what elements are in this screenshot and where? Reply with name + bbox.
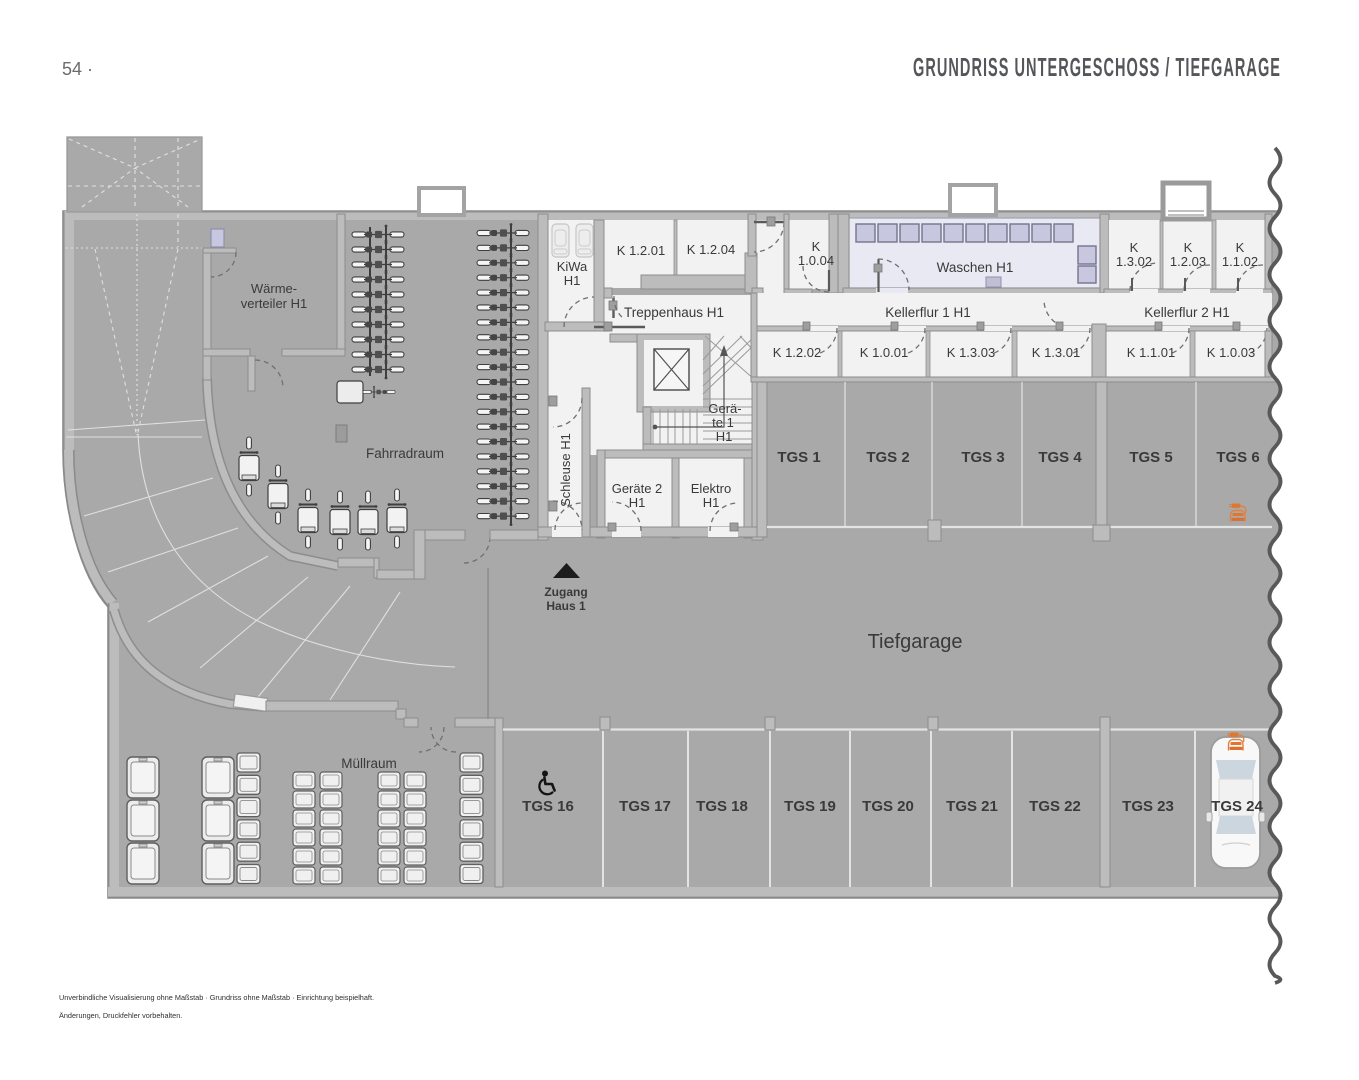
svg-text:Waschen H1: Waschen H1 bbox=[937, 260, 1014, 275]
svg-text:TGS 4: TGS 4 bbox=[1038, 449, 1082, 466]
svg-text:K: K bbox=[1236, 240, 1245, 255]
svg-text:te 1: te 1 bbox=[712, 415, 734, 430]
svg-text:Zugang: Zugang bbox=[544, 585, 587, 599]
svg-text:K: K bbox=[1130, 240, 1139, 255]
svg-text:Wärme-: Wärme- bbox=[251, 281, 297, 296]
svg-text:K 1.0.03: K 1.0.03 bbox=[1207, 345, 1255, 360]
svg-text:Unverbindliche Visualisierung: Unverbindliche Visualisierung ohne Maßst… bbox=[59, 993, 374, 1002]
svg-text:TGS 21: TGS 21 bbox=[946, 798, 998, 815]
svg-text:1.3.02: 1.3.02 bbox=[1116, 254, 1152, 269]
svg-text:K 1.3.01: K 1.3.01 bbox=[1032, 345, 1080, 360]
svg-text:TGS 22: TGS 22 bbox=[1029, 798, 1081, 815]
svg-text:Gerä-: Gerä- bbox=[708, 401, 741, 416]
svg-text:K 1.2.02: K 1.2.02 bbox=[773, 345, 821, 360]
svg-text:TGS 19: TGS 19 bbox=[784, 798, 836, 815]
svg-text:TGS 5: TGS 5 bbox=[1129, 449, 1172, 466]
svg-text:TGS 6: TGS 6 bbox=[1216, 449, 1259, 466]
svg-text:Tiefgarage: Tiefgarage bbox=[868, 631, 963, 653]
svg-text:1.1.02: 1.1.02 bbox=[1222, 254, 1258, 269]
svg-text:TGS 24: TGS 24 bbox=[1211, 798, 1263, 815]
svg-text:K 1.2.01: K 1.2.01 bbox=[617, 243, 665, 258]
svg-text:K 1.3.03: K 1.3.03 bbox=[947, 345, 995, 360]
svg-text:54 ·: 54 · bbox=[62, 59, 93, 79]
svg-text:TGS 1: TGS 1 bbox=[777, 449, 820, 466]
svg-text:TGS 3: TGS 3 bbox=[961, 449, 1004, 466]
svg-text:TGS 2: TGS 2 bbox=[866, 449, 909, 466]
svg-text:K 1.2.04: K 1.2.04 bbox=[687, 242, 735, 257]
svg-text:TGS 16: TGS 16 bbox=[522, 798, 574, 815]
svg-text:Kellerflur 2 H1: Kellerflur 2 H1 bbox=[1144, 305, 1230, 320]
svg-text:1.0.04: 1.0.04 bbox=[798, 253, 834, 268]
svg-text:Geräte 2: Geräte 2 bbox=[612, 481, 663, 496]
svg-text:Kellerflur 1 H1: Kellerflur 1 H1 bbox=[885, 305, 971, 320]
svg-text:Schleuse H1: Schleuse H1 bbox=[558, 433, 573, 507]
svg-text:K: K bbox=[1184, 240, 1193, 255]
svg-text:GRUNDRISS UNTERGESCHOSS / TIEF: GRUNDRISS UNTERGESCHOSS / TIEFGARAGE bbox=[913, 54, 1281, 82]
svg-text:Müllraum: Müllraum bbox=[341, 756, 397, 771]
svg-text:TGS 17: TGS 17 bbox=[619, 798, 671, 815]
svg-text:verteiler H1: verteiler H1 bbox=[241, 296, 307, 311]
svg-text:K 1.0.01: K 1.0.01 bbox=[860, 345, 908, 360]
svg-text:Haus 1: Haus 1 bbox=[546, 599, 586, 613]
svg-text:K 1.1.01: K 1.1.01 bbox=[1127, 345, 1175, 360]
svg-text:TGS 23: TGS 23 bbox=[1122, 798, 1174, 815]
svg-text:Elektro: Elektro bbox=[691, 481, 731, 496]
svg-text:H1: H1 bbox=[716, 429, 733, 444]
svg-text:TGS 18: TGS 18 bbox=[696, 798, 748, 815]
svg-text:H1: H1 bbox=[629, 495, 646, 510]
svg-text:Treppenhaus H1: Treppenhaus H1 bbox=[624, 305, 724, 320]
svg-text:KiWa: KiWa bbox=[557, 259, 588, 274]
svg-text:H1: H1 bbox=[703, 495, 720, 510]
svg-text:K: K bbox=[812, 239, 821, 254]
svg-text:TGS 20: TGS 20 bbox=[862, 798, 914, 815]
svg-text:Änderungen, Druckfehler vorbeh: Änderungen, Druckfehler vorbehalten. bbox=[59, 1011, 182, 1020]
svg-text:Fahrradraum: Fahrradraum bbox=[366, 446, 444, 461]
svg-text:1.2.03: 1.2.03 bbox=[1170, 254, 1206, 269]
svg-text:H1: H1 bbox=[564, 273, 581, 288]
